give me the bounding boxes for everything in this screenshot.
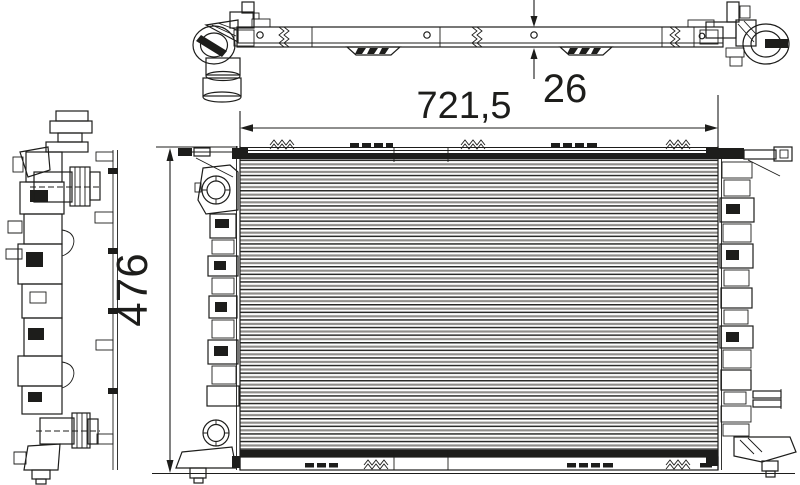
front-view-left-tank (176, 148, 239, 483)
arrowhead-down-icon (167, 460, 174, 473)
radiator-core-fins (240, 160, 718, 450)
radiator-technical-drawing: 26 (0, 0, 800, 485)
side-view-bottom-mount (14, 444, 60, 484)
top-header-tank-bar (240, 153, 718, 160)
height-dimension-label: 476 (108, 253, 157, 326)
dimension-width: 721,5 (240, 85, 718, 150)
depth-dimension-label: 26 (543, 67, 588, 111)
bottom-header-tank-bar (240, 450, 718, 457)
right-mount-bracket (734, 437, 796, 462)
front-view (152, 140, 796, 483)
arrowhead-right-icon (705, 124, 718, 132)
arrowhead-up-icon (167, 148, 174, 161)
side-view-lower-pipe (36, 413, 100, 448)
arrowhead-up-icon (531, 48, 538, 59)
coolant-pipe-stub (203, 58, 241, 102)
drawing-canvas: 26 (0, 0, 800, 485)
front-view-right-tank (718, 147, 796, 477)
left-mount-pin (190, 468, 206, 478)
width-dimension-label: 721,5 (416, 85, 511, 127)
lower-mount-tab (347, 47, 400, 55)
top-view-left-fitting (193, 2, 254, 102)
side-view-top-cap (46, 111, 92, 152)
right-pipe-stub (753, 389, 781, 409)
filler-neck (202, 176, 230, 204)
arrowhead-left-icon (240, 124, 253, 132)
drain-plug (203, 420, 229, 446)
side-view (6, 111, 118, 484)
lower-mount-tab (560, 47, 612, 55)
right-mount-pin (762, 461, 778, 471)
left-mount-foot (176, 447, 236, 468)
arrowhead-down-icon (531, 16, 538, 27)
